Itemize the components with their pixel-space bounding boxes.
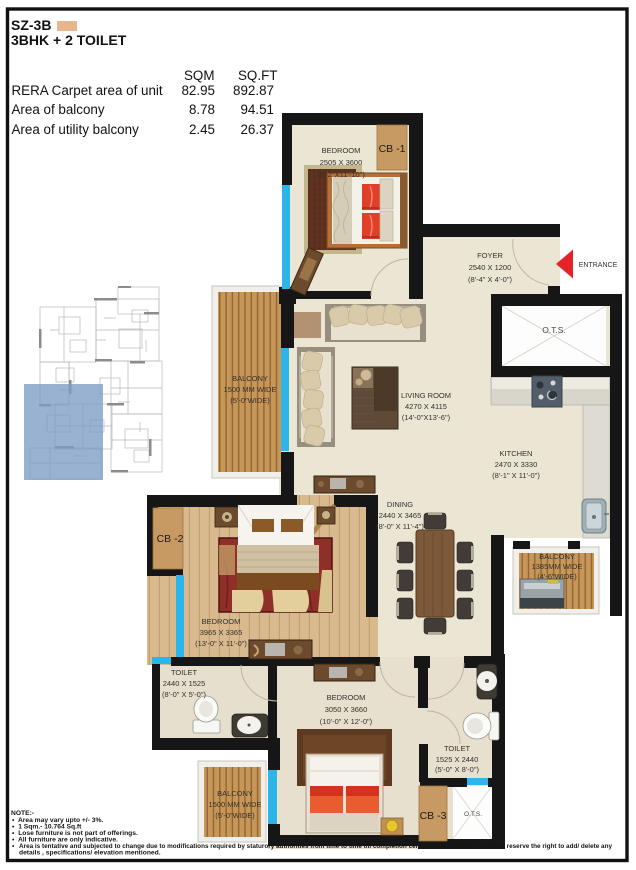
svg-text:(10'-0" X 12'-0"): (10'-0" X 12'-0") xyxy=(320,717,373,726)
svg-text:O.T.S.: O.T.S. xyxy=(464,811,482,818)
svg-text:(8'-1" X 11'-0"): (8'-1" X 11'-0") xyxy=(492,471,540,480)
svg-text:CB -2: CB -2 xyxy=(157,533,184,545)
svg-text:1385MM WIDE: 1385MM WIDE xyxy=(532,562,583,571)
svg-text:SQ.FT: SQ.FT xyxy=(238,68,277,83)
svg-text:2505 X 3600: 2505 X 3600 xyxy=(320,158,363,167)
svg-text:BEDROOM: BEDROOM xyxy=(322,146,361,155)
svg-text:NOTE:-: NOTE:- xyxy=(11,810,34,817)
svg-text:O.T.S.: O.T.S. xyxy=(542,325,566,335)
svg-text:Area of balcony: Area of balcony xyxy=(12,102,105,117)
svg-text:94.51: 94.51 xyxy=(240,102,274,117)
svg-text:892.87: 892.87 xyxy=(233,83,274,98)
svg-text:TOILET: TOILET xyxy=(171,668,198,677)
svg-text:2470 X 3330: 2470 X 3330 xyxy=(495,460,538,469)
svg-text:3050 X 3660: 3050 X 3660 xyxy=(325,705,368,714)
svg-text:ENTRANCE: ENTRANCE xyxy=(579,262,618,269)
svg-text:(8'-2"X11'-10"): (8'-2"X11'-10") xyxy=(317,170,365,179)
svg-text:Area of utility balcony: Area of utility balcony xyxy=(12,122,140,137)
svg-text:3965 X 3365: 3965 X 3365 xyxy=(200,628,243,637)
svg-text:RERA Carpet area of unit: RERA Carpet area of unit xyxy=(12,83,163,98)
svg-text:2440 X 3465: 2440 X 3465 xyxy=(379,511,422,520)
svg-text:(8'-0" X 11'-4"): (8'-0" X 11'-4") xyxy=(376,522,424,531)
svg-text:(14'-0"X13'-6"): (14'-0"X13'-6") xyxy=(402,413,451,422)
svg-text:SQM: SQM xyxy=(184,68,215,83)
svg-text:2540 X 1200: 2540 X 1200 xyxy=(469,263,512,272)
svg-text:(13'-0" X 11'-0"): (13'-0" X 11'-0") xyxy=(195,639,247,648)
svg-text:SZ-3B: SZ-3B xyxy=(11,17,51,33)
svg-text:FOYER: FOYER xyxy=(477,251,503,260)
svg-text:BALCONY: BALCONY xyxy=(232,374,268,383)
svg-text:26.37: 26.37 xyxy=(240,122,274,137)
svg-text:BEDROOM: BEDROOM xyxy=(202,617,241,626)
svg-text:LIVING ROOM: LIVING ROOM xyxy=(401,391,451,400)
svg-text:details , specifications/ elev: details , specifications/ elevation ment… xyxy=(19,850,161,857)
svg-text:2.45: 2.45 xyxy=(189,122,215,137)
svg-text:(4'-6"WIDE): (4'-6"WIDE) xyxy=(537,572,577,581)
svg-text:1525 X 2440: 1525 X 2440 xyxy=(436,755,479,764)
svg-text:(5'-0" X 8'-0"): (5'-0" X 8'-0") xyxy=(435,765,480,774)
svg-text:•: • xyxy=(12,843,15,850)
svg-text:BALCONY: BALCONY xyxy=(217,789,253,798)
svg-text:KITCHEN: KITCHEN xyxy=(500,449,533,458)
svg-text:CB -3: CB -3 xyxy=(420,810,447,822)
svg-text:82.95: 82.95 xyxy=(181,83,215,98)
svg-text:3BHK + 2 TOILET: 3BHK + 2 TOILET xyxy=(11,32,127,48)
svg-text:BALCONY: BALCONY xyxy=(539,552,575,561)
svg-text:(8'-0" X 5'-0"): (8'-0" X 5'-0") xyxy=(162,690,207,699)
svg-text:(5'-0"WIDE): (5'-0"WIDE) xyxy=(230,396,270,405)
svg-text:(8'-4" X 4'-0"): (8'-4" X 4'-0") xyxy=(468,275,513,284)
svg-text:TOILET: TOILET xyxy=(444,744,471,753)
svg-text:DINING: DINING xyxy=(387,500,413,509)
svg-text:4270 X 4115: 4270 X 4115 xyxy=(405,402,447,411)
svg-text:8.78: 8.78 xyxy=(189,102,215,117)
svg-text:(5'-0"WIDE): (5'-0"WIDE) xyxy=(215,811,255,820)
svg-text:CB -1: CB -1 xyxy=(379,143,406,155)
svg-text:2440 X 1525: 2440 X 1525 xyxy=(163,679,206,688)
svg-text:1500 MM WIDE: 1500 MM WIDE xyxy=(209,800,262,809)
svg-text:1500 MM WIDE: 1500 MM WIDE xyxy=(224,385,277,394)
svg-text:BEDROOM: BEDROOM xyxy=(327,693,366,702)
